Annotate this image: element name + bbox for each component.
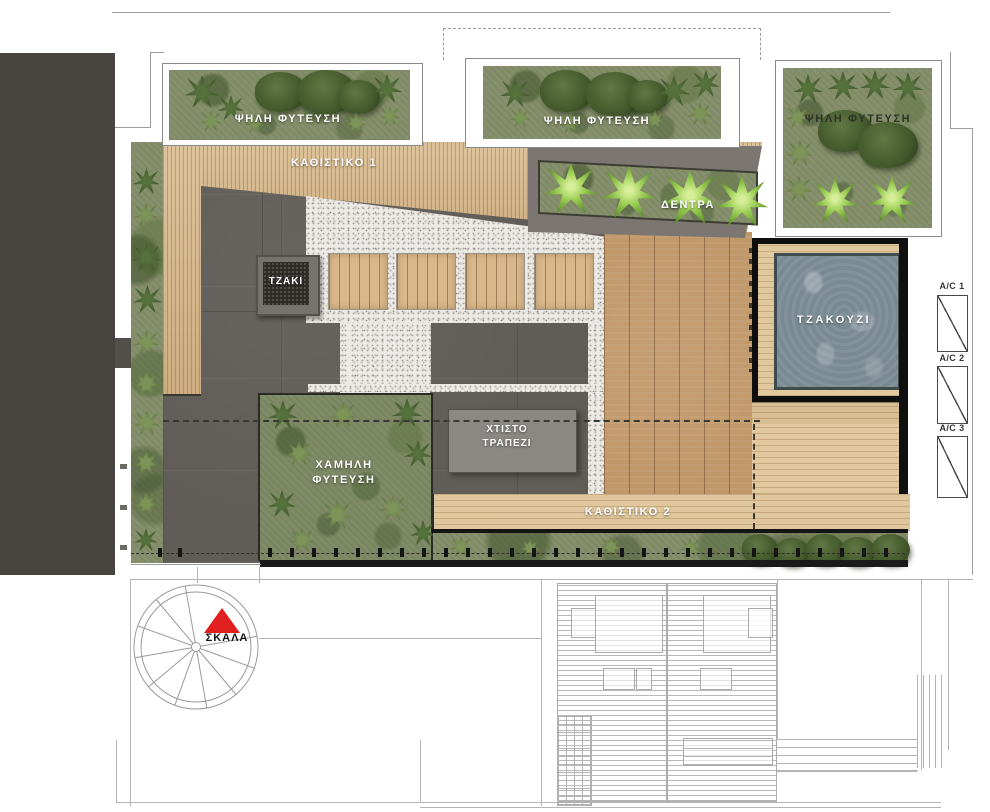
wall-marker <box>120 545 127 550</box>
hatch-column <box>917 675 944 768</box>
spot-lights-row <box>268 548 902 557</box>
terrace-edge-black <box>260 560 908 567</box>
terrace-edge-line <box>131 564 261 565</box>
ac-unit-label: A/C 2 <box>936 353 968 363</box>
low-planting-label: ΧΑΜΗΛΗ <box>315 459 372 471</box>
ac-unit <box>937 436 968 498</box>
low-planting-label: ΦΥΤΕΥΣΗ <box>312 474 375 486</box>
gravel-joint <box>343 323 349 384</box>
spiral-staircase <box>128 579 268 719</box>
planter-label: ΨΗΛΗ ΦΥΤΕΥΣΗ <box>544 115 650 127</box>
ac-unit-label: A/C 1 <box>936 281 968 291</box>
built-table-label: ΤΡΑΠΕΖΙ <box>482 438 531 449</box>
gravel-joint <box>308 384 604 392</box>
deck-right-lower <box>752 424 908 494</box>
sofa-outline <box>595 595 663 653</box>
outline-line <box>950 52 951 129</box>
spot-light <box>178 548 182 557</box>
grid-hatch <box>557 716 592 806</box>
floor-outline <box>130 579 973 580</box>
ac-unit <box>937 295 968 352</box>
ac-unit <box>937 366 968 424</box>
sofa-outline <box>748 608 773 638</box>
floor-outline <box>130 579 131 806</box>
table-outline <box>603 668 635 690</box>
outline-line <box>950 128 973 129</box>
floor-outline <box>948 579 949 750</box>
timber-pad <box>328 253 388 310</box>
floor-outline <box>420 807 941 808</box>
jacuzzi-label: ΤΖΑΚΟΥΖΙ <box>797 314 871 326</box>
outline-line <box>112 12 890 13</box>
floor-outline <box>777 770 918 771</box>
floor-outline <box>777 579 778 740</box>
table-outline <box>700 668 732 690</box>
built-table-label: ΧΤΙΣΤΟ <box>486 424 527 435</box>
main-deck <box>604 232 752 532</box>
timber-pad <box>534 253 594 310</box>
seating-2-label: ΚΑΘΙΣΤΙΚΟ 2 <box>585 506 671 518</box>
timber-pad <box>465 253 525 310</box>
ac-unit-label: A/C 3 <box>936 423 968 433</box>
steps-outline <box>777 738 917 772</box>
terrace-edge-black <box>899 238 908 532</box>
stairs-label: ΣΚΑΛΑ <box>206 632 249 644</box>
dashed-setback-line <box>443 28 761 60</box>
floor-outline <box>541 579 542 806</box>
gravel-joint <box>423 323 431 384</box>
floor-outline <box>420 740 421 803</box>
timber-pad <box>396 253 456 310</box>
dashed-line <box>163 420 760 422</box>
stairs-direction-icon <box>204 608 240 633</box>
table-outline <box>636 668 652 690</box>
wall-marker <box>120 464 127 469</box>
seating-1-label: ΚΑΘΙΣΤΙΚΟ 1 <box>291 157 377 169</box>
spot-light <box>158 548 162 557</box>
outline-line <box>150 52 164 53</box>
outline-line <box>972 128 973 575</box>
planter-label: ΨΗΛΗ ΦΥΤΕΥΣΗ <box>235 113 341 125</box>
floor-outline <box>116 802 941 803</box>
sofa-outline <box>571 608 596 638</box>
bush <box>338 80 380 114</box>
timber-strip-left <box>163 142 201 396</box>
fireplace-label: ΤΖΑΚΙ <box>269 276 303 287</box>
bush <box>628 80 668 113</box>
roof-terrace-plan: A/C 1 A/C 2 A/C 3 ΨΗΛΗ <box>0 0 990 812</box>
outline-line <box>150 52 151 127</box>
dashed-line <box>753 424 755 529</box>
jacuzzi-step <box>752 402 908 426</box>
floor-outline <box>116 740 117 803</box>
floor-line <box>259 638 541 639</box>
trees-label: ΔΕΝΤΡΑ <box>661 199 715 211</box>
bush <box>858 122 918 168</box>
planter-label: ΨΗΛΗ ΦΥΤΕΥΣΗ <box>805 113 911 125</box>
bench-outline <box>683 738 773 766</box>
building-mass <box>0 53 115 575</box>
wall-marker <box>120 505 127 510</box>
outline-line <box>115 127 151 128</box>
